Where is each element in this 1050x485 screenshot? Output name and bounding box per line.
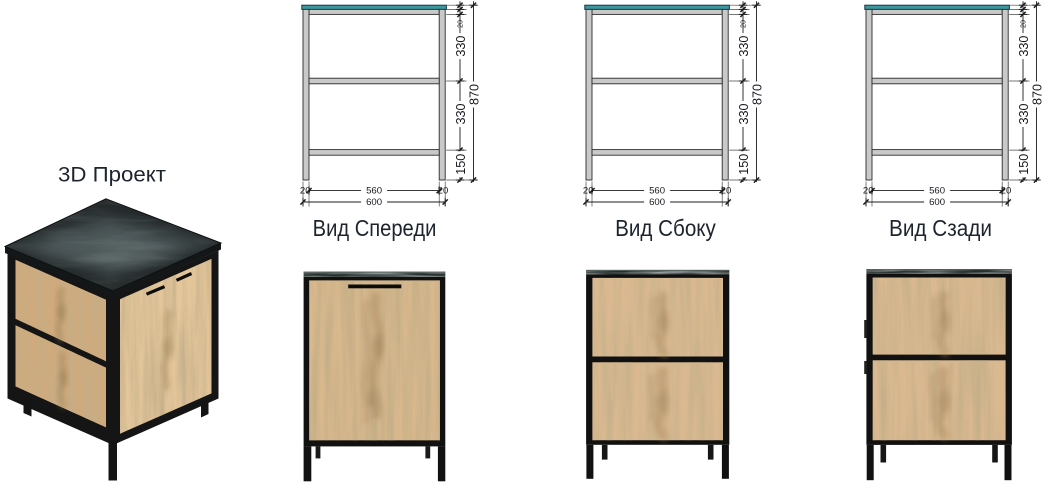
svg-text:600: 600 xyxy=(929,197,945,208)
svg-text:150: 150 xyxy=(1017,154,1031,175)
svg-text:870: 870 xyxy=(1031,84,1045,105)
svg-text:3D Проект: 3D Проект xyxy=(58,164,166,187)
svg-text:Вид Сзади: Вид Сзади xyxy=(889,215,992,241)
svg-text:20: 20 xyxy=(1019,20,1028,28)
svg-text:330: 330 xyxy=(1017,103,1031,124)
svg-text:20: 20 xyxy=(863,186,874,197)
svg-text:600: 600 xyxy=(649,197,665,208)
svg-text:Вид Спереди: Вид Спереди xyxy=(313,215,437,241)
svg-text:330: 330 xyxy=(454,36,468,57)
svg-text:600: 600 xyxy=(366,197,382,208)
svg-text:330: 330 xyxy=(737,36,751,57)
svg-text:20: 20 xyxy=(456,20,465,28)
svg-text:150: 150 xyxy=(454,154,468,175)
svg-text:20: 20 xyxy=(300,186,311,197)
svg-text:20: 20 xyxy=(438,186,449,197)
svg-text:870: 870 xyxy=(751,84,765,105)
svg-text:20: 20 xyxy=(721,186,732,197)
svg-text:330: 330 xyxy=(737,103,751,124)
svg-text:330: 330 xyxy=(1017,36,1031,57)
svg-text:560: 560 xyxy=(649,186,665,197)
svg-text:20: 20 xyxy=(583,186,594,197)
svg-text:560: 560 xyxy=(366,186,382,197)
svg-text:560: 560 xyxy=(929,186,945,197)
svg-text:20: 20 xyxy=(1001,186,1012,197)
svg-text:Вид Сбоку: Вид Сбоку xyxy=(615,215,716,241)
svg-text:150: 150 xyxy=(737,154,751,175)
svg-text:870: 870 xyxy=(468,84,482,105)
svg-text:330: 330 xyxy=(454,103,468,124)
svg-text:20: 20 xyxy=(739,20,748,28)
